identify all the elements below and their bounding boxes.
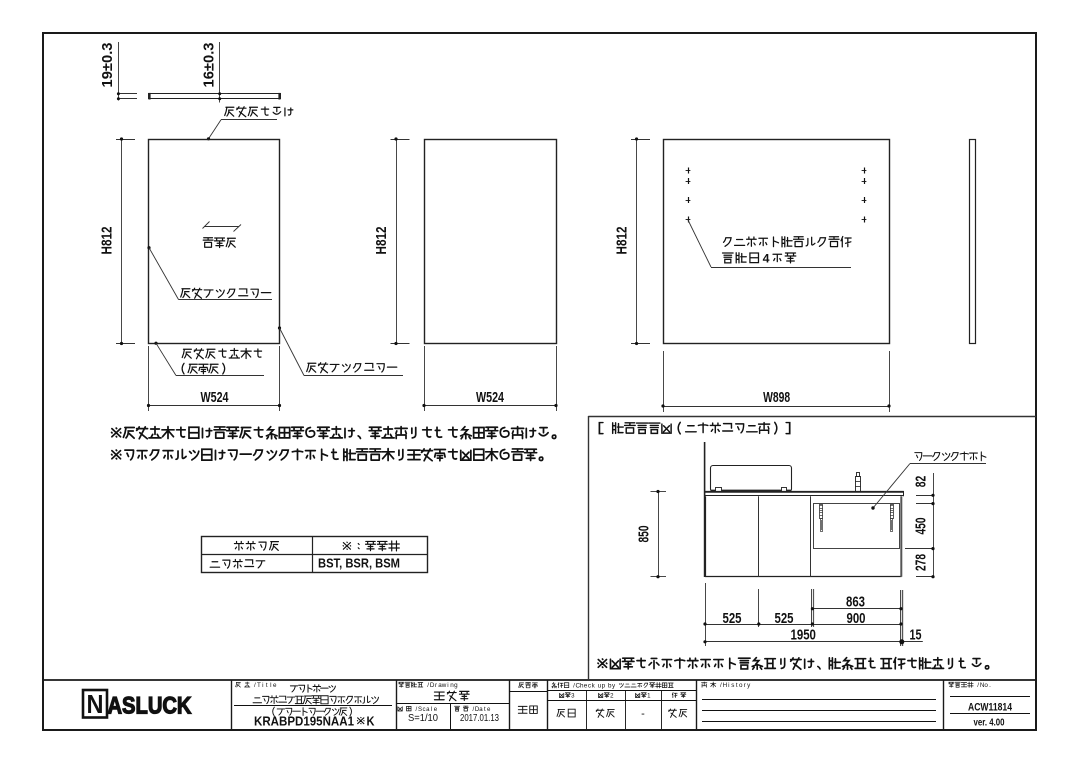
svg-text:W898: W898 <box>763 389 790 406</box>
svg-text:863: 863 <box>846 594 865 611</box>
svg-text:850: 850 <box>637 526 653 543</box>
svg-text:w: w <box>441 682 447 689</box>
svg-text:l: l <box>431 706 432 713</box>
svg-text:ASLUCK: ASLUCK <box>108 693 192 720</box>
svg-text:450: 450 <box>914 518 930 535</box>
svg-text:r: r <box>435 682 437 689</box>
svg-text:t: t <box>736 682 738 689</box>
svg-text:16±0.3: 16±0.3 <box>202 43 218 88</box>
svg-text:/: / <box>254 682 256 689</box>
svg-text:H812: H812 <box>373 227 390 255</box>
svg-text:-: - <box>641 708 645 720</box>
svg-text:r: r <box>744 682 746 689</box>
svg-text:o: o <box>739 682 743 689</box>
svg-text:K: K <box>367 715 375 729</box>
svg-text:t: t <box>266 682 268 689</box>
svg-text:900: 900 <box>847 610 866 627</box>
svg-text:W524: W524 <box>201 389 229 406</box>
svg-text:t: t <box>484 706 486 713</box>
svg-text:.: . <box>989 682 991 689</box>
svg-text:KRABPD195NAA1: KRABPD195NAA1 <box>254 715 354 729</box>
svg-text:p: p <box>602 683 606 690</box>
svg-text:H812: H812 <box>614 227 631 255</box>
svg-text:g: g <box>454 682 458 689</box>
svg-text:o: o <box>984 682 988 689</box>
svg-text:ver. 4.00: ver. 4.00 <box>974 718 1005 729</box>
svg-text:i: i <box>262 682 263 689</box>
svg-text:e: e <box>487 706 491 713</box>
svg-text:N: N <box>87 689 104 719</box>
svg-text:4: 4 <box>763 251 770 265</box>
svg-text:T: T <box>257 682 261 689</box>
svg-text:ACW11814: ACW11814 <box>968 702 1013 714</box>
svg-text:525: 525 <box>775 610 794 627</box>
svg-text:19±0.3: 19±0.3 <box>100 43 116 88</box>
svg-text:2017.01.13: 2017.01.13 <box>460 713 499 724</box>
svg-text:BST, BSR, BSM: BST, BSR, BSM <box>318 556 400 571</box>
svg-text:1950: 1950 <box>790 627 816 644</box>
svg-text:H812: H812 <box>99 227 116 255</box>
svg-text:525: 525 <box>723 610 742 627</box>
svg-text:i: i <box>447 682 448 689</box>
svg-text:c: c <box>588 683 591 690</box>
svg-text:W524: W524 <box>476 389 504 406</box>
svg-text:i: i <box>728 682 729 689</box>
svg-text:e: e <box>273 682 277 689</box>
svg-text:l: l <box>270 682 271 689</box>
svg-text:s: s <box>731 682 734 689</box>
svg-text:15: 15 <box>910 627 922 644</box>
svg-text:278: 278 <box>914 554 930 571</box>
svg-text:H: H <box>723 682 728 689</box>
svg-text:82: 82 <box>914 476 930 488</box>
svg-text:S=1/10: S=1/10 <box>408 713 438 724</box>
svg-text:c: c <box>422 706 425 713</box>
